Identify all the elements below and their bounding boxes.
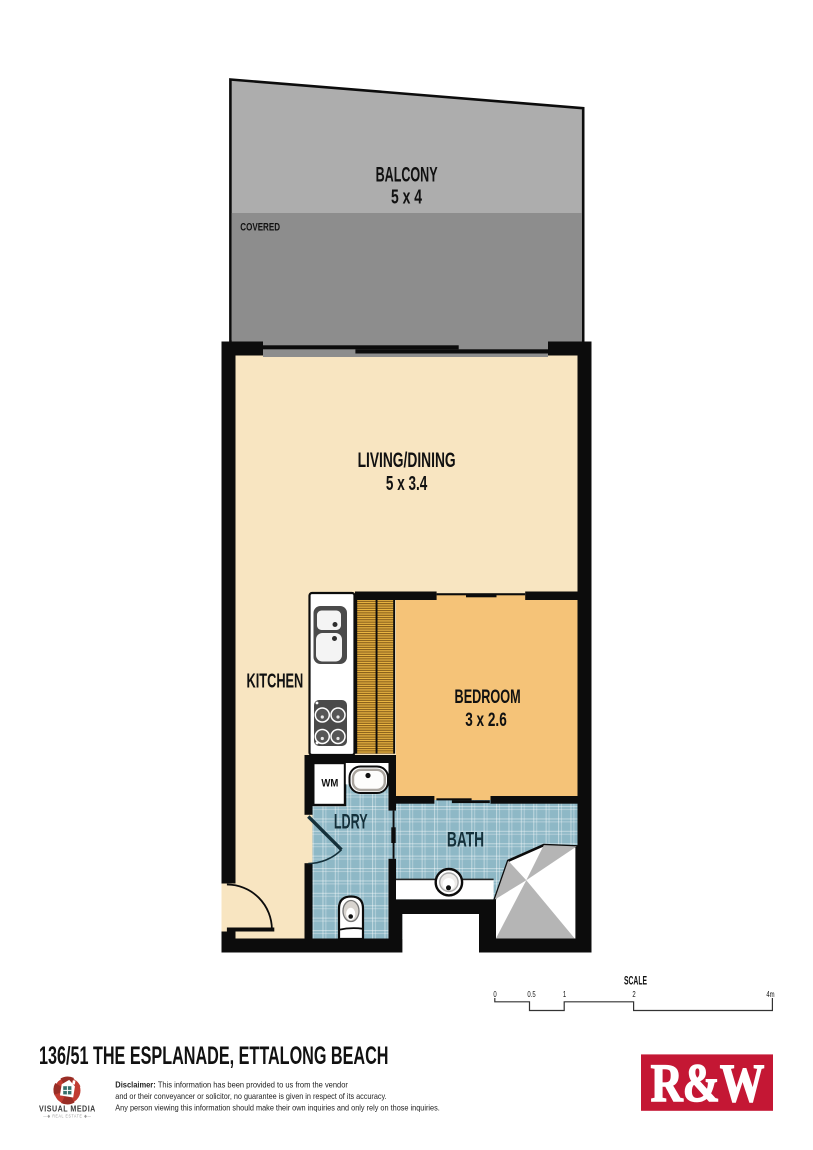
svg-text:1: 1 [563,989,566,999]
svg-text:4m: 4m [766,989,774,999]
svg-text:3 x 2.6: 3 x 2.6 [465,709,507,731]
svg-text:BALCONY: BALCONY [376,162,438,186]
svg-text:0: 0 [493,989,496,999]
svg-text:BATH: BATH [447,827,484,851]
svg-text:—◆ REAL ESTATE ◆—: —◆ REAL ESTATE ◆— [43,1113,91,1119]
svg-text:COVERED: COVERED [240,221,280,234]
svg-text:0.5: 0.5 [527,989,535,999]
svg-text:5 x 4: 5 x 4 [391,185,422,208]
svg-text:SCALE: SCALE [624,975,647,989]
svg-text:LDRY: LDRY [334,809,368,833]
svg-text:Disclaimer: This information h: Disclaimer: This information has been pr… [115,1080,348,1090]
svg-text:R&W: R&W [651,1053,765,1113]
svg-text:5 x 3.4: 5 x 3.4 [386,472,428,494]
svg-text:Any person viewing this inform: Any person viewing this information shou… [115,1103,440,1113]
svg-text:and or their conveyancer or so: and or their conveyancer or solicitor, n… [115,1091,386,1101]
svg-text:2: 2 [632,989,635,999]
svg-text:KITCHEN: KITCHEN [247,670,304,693]
svg-text:WM: WM [321,777,338,790]
svg-text:BEDROOM: BEDROOM [455,686,521,707]
svg-text:LIVING/DINING: LIVING/DINING [358,448,456,472]
svg-text:136/51 THE ESPLANADE, ETTALONG: 136/51 THE ESPLANADE, ETTALONG BEACH [39,1042,388,1069]
